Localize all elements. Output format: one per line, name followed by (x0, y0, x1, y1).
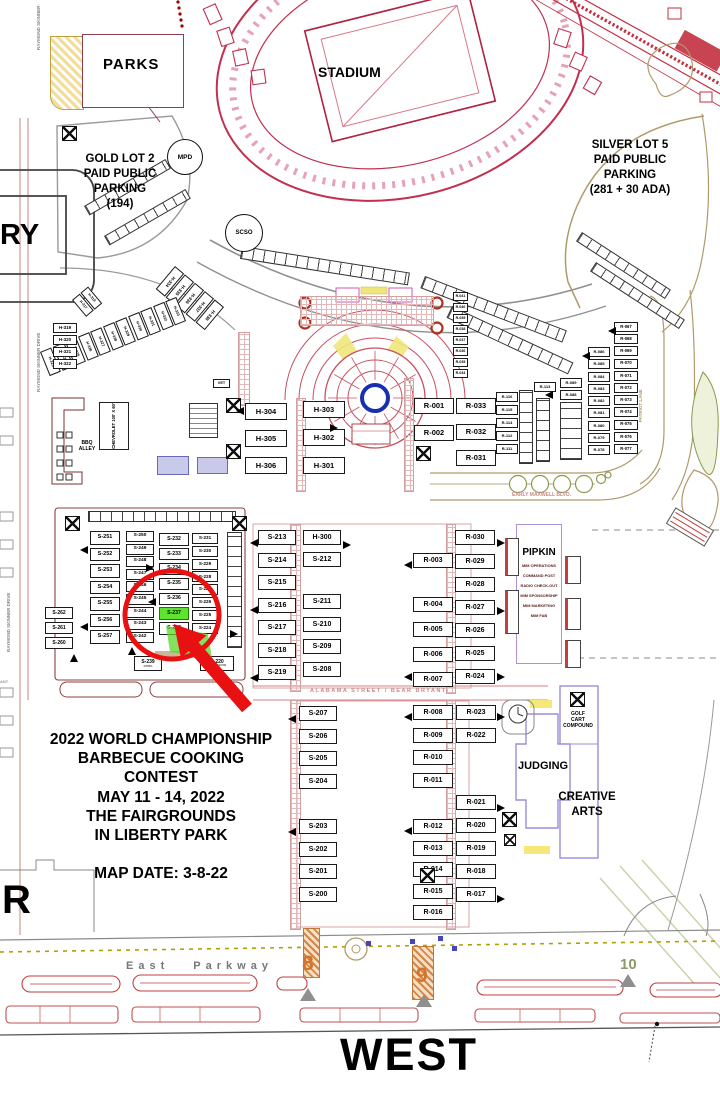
booth-s-211: S-211 (303, 594, 341, 609)
golf-cart-label: GOLFCARTCOMPOUND (556, 712, 600, 729)
booth-strip (240, 246, 410, 285)
booth-r-085: R-085 (588, 359, 610, 369)
booth-col-s232: S-232S-233S-234S-235S-236S-237S-238 (159, 533, 189, 635)
booth-r-071: R-071 (614, 371, 638, 381)
booth-col-r041: R-041R-040R-039R-038R-037R-036R-035R-034 (453, 292, 468, 378)
booth-col-h319: H-319H-320H-321H-322 (53, 323, 77, 369)
booth-r-111: R-111 (496, 444, 518, 454)
text-the-fairgrounds: THE FAIRGROUNDS (30, 807, 292, 826)
booth-col-r067: R-067R-068R-069R-070R-071R-072R-073R-074… (614, 322, 638, 454)
entrance-arrow (80, 546, 88, 554)
booth-r-027: R-027 (455, 600, 495, 615)
pipkin-label: PIPKIN (517, 547, 561, 558)
entrance-arrow (70, 654, 78, 662)
utility-box (62, 126, 77, 141)
text-paid-public: PAID PUBLIC (562, 153, 698, 168)
booth-h-303: H-303 (303, 401, 345, 418)
booth-r-083: R-083 (588, 384, 610, 394)
booth-s-231: S-231 (192, 533, 218, 544)
booth-r-004: R-004 (413, 597, 453, 612)
booth-col-s213: S-213S-214S-215S-216S-217S-218S-219 (258, 530, 296, 680)
text-gold-lot-2: GOLD LOT 2 (58, 152, 182, 167)
entrance-arrow (250, 606, 258, 614)
booth-r-115: R-115 (496, 405, 518, 415)
booth-r-068: R-068 (614, 334, 638, 344)
booth-s-244: S-244 (126, 607, 154, 618)
booth-col-r029: R-029R-028R-027R-026R-025R-024 (455, 554, 495, 684)
booth-col-r033: R-033R-032R-031 (456, 398, 496, 466)
booth-s-260: S-260 (45, 637, 73, 649)
booth-h-319: H-319 (53, 323, 77, 333)
vendor-booth (565, 640, 581, 668)
booth-s-205: S-205 (299, 751, 337, 766)
entrance-arrow (497, 673, 505, 681)
booth-s-250: S-250 (126, 531, 154, 542)
booth-s-216: S-216 (258, 598, 296, 613)
text-mim-marketing: MIM MARKETING (517, 604, 561, 608)
booth-s-226: S-226 (192, 597, 218, 608)
entrance-arrow (330, 424, 338, 432)
gate-10-label: 10 (620, 956, 637, 973)
booth-h-306: H-306 (245, 457, 287, 474)
booth-s-224: S-224 (192, 623, 218, 634)
parks-label: PARKS (103, 56, 159, 74)
vendor-booth (565, 598, 581, 630)
pipkin-departments: MIM OPERATIONSCOMMAND POSTRADIO CHECK-OU… (517, 564, 561, 617)
booth-col-s251: S-251S-252S-253S-254S-255S-256S-257 (90, 531, 120, 644)
text-mim-fab: MIM FAB (517, 614, 561, 618)
booth-r-021: R-021 (456, 795, 496, 810)
booth-col-s203: S-203S-202S-201S-200 (299, 819, 337, 902)
street-alabama: ALABAMA STREET / BEAR BRYANT (310, 688, 447, 695)
utility-box (504, 834, 516, 846)
booth-s-238: S-238 (159, 622, 189, 635)
booth-s-237: S-237 (159, 607, 189, 620)
booth-r-015: R-015 (413, 884, 453, 899)
utility-box (420, 868, 435, 883)
booth-s-229: S-229 (192, 559, 218, 570)
booth-col-s224: S-231S-230S-229S-228S-227S-226S-225S-224 (192, 533, 218, 634)
text--281-30-ada-: (281 + 30 ADA) (562, 183, 698, 198)
street-raymond-skinner-mid: RAYMOND SKINNER DRIVE (36, 300, 41, 392)
plaza-hatch (300, 296, 434, 326)
text-parking: PARKING (562, 168, 698, 183)
entrance-arrow (404, 827, 412, 835)
booth-strip (536, 398, 550, 462)
walkway-hatch (404, 378, 414, 492)
booth-s-204: S-204 (299, 774, 337, 789)
booth-s-219: S-219 (258, 665, 296, 680)
stadium-label: STADIUM (318, 64, 381, 81)
entrance-arrow (497, 804, 505, 812)
text-in-liberty-park: IN LIBERTY PARK (30, 826, 292, 845)
gate-9-marker (416, 994, 432, 1007)
vet-booth: VET (213, 379, 230, 388)
booth-s-256: S-256 (90, 614, 120, 628)
vendor-tent (157, 456, 189, 475)
entrance-arrow (236, 407, 244, 415)
booth-r-001: R-001 (414, 398, 454, 414)
booth-s-232: S-232 (159, 533, 189, 546)
vendor-booth (505, 538, 519, 576)
booth-r-013: R-013 (413, 841, 453, 856)
booth-h-304: H-304 (245, 403, 287, 420)
booth-r-073: R-073 (614, 395, 638, 405)
booth-s-213: S-213 (258, 530, 296, 545)
entrance-arrow (148, 598, 156, 606)
booth-r-075: R-075 (614, 420, 638, 430)
chevrolet-tent: CHEVROLET 100' X 60' (99, 402, 129, 450)
booth-s-227: S-227 (192, 584, 218, 595)
booth-r-084: R-084 (588, 372, 610, 382)
booth-col-r078: R-086R-085R-084R-083R-082R-081R-080R-079… (588, 347, 610, 455)
text-compound: COMPOUND (556, 724, 600, 730)
booth-s-212: S-212 (303, 552, 341, 567)
booth-r-082: R-082 (588, 396, 610, 406)
booth-s-228: S-228 (192, 571, 218, 582)
booth-r-009: R-009 (413, 728, 453, 743)
title-lines: 2022 WORLD CHAMPIONSHIPBARBECUE COOKINGC… (30, 730, 292, 845)
booth-s-262: S-262 (45, 607, 73, 619)
text-command-post: COMMAND POST (517, 574, 561, 578)
booth-s-225: S-225 (192, 610, 218, 621)
booth-r-030: R-030 (455, 530, 495, 545)
booth-r-022: R-022 (456, 728, 496, 743)
entrance-arrow (250, 674, 258, 682)
booth-r-028: R-028 (455, 577, 495, 592)
booth-r-006: R-006 (413, 647, 453, 662)
booth-col-s260: S-262S-261S-260 (45, 607, 73, 649)
entrance-arrow (128, 647, 136, 655)
booth-r-070: R-070 (614, 359, 638, 369)
booth-s-218: S-218 (258, 643, 296, 658)
street-early-maxwell: EARLY MAXWELL BLVD. (512, 492, 571, 498)
entrance-arrow (288, 715, 296, 723)
booth-r-072: R-072 (614, 383, 638, 393)
booth-col-r008: R-008R-009R-010R-011 (413, 705, 453, 788)
booth-r-080: R-080 (588, 421, 610, 431)
booth-s-252: S-252 (90, 548, 120, 562)
booth-s-234: S-234 (159, 563, 189, 576)
text-alley: ALLEY (76, 447, 98, 453)
booth-strip (519, 390, 533, 464)
booth-s-257: S-257 (90, 630, 120, 644)
booth-s-251: S-251 (90, 531, 120, 545)
booth-h-322: H-322 (53, 359, 77, 369)
gate-10-marker (620, 974, 636, 987)
street-raymond-skinner-top: RAYMOND SKINNER DRIVE (36, 4, 41, 50)
walkway-hatch (238, 332, 250, 406)
booth-s-249: S-249 (126, 544, 154, 555)
booth-col-r089: R-089R-088 (560, 378, 582, 400)
booth-r-034: R-034 (453, 369, 468, 378)
entrance-arrow (404, 561, 412, 569)
booth-s-254: S-254 (90, 581, 120, 595)
booth-s-215: S-215 (258, 575, 296, 590)
booth-col-r003: R-003 (413, 553, 453, 568)
booth-h-301: H-301 (303, 457, 345, 474)
booth-r-025: R-025 (455, 646, 495, 661)
booth-col-h300: H-300S-212 (303, 530, 341, 567)
street-patriot-lane: PATRIOT LANE (638, 360, 643, 422)
booth-r-069: R-069 (614, 346, 638, 356)
scso-badge: SCSO (225, 214, 263, 252)
utility-box (502, 812, 517, 827)
bbq-alley-label: BBQALLEY (76, 441, 98, 453)
booth-s-253: S-253 (90, 564, 120, 578)
booth-col-r030: R-030 (455, 530, 495, 545)
parks-hatch (50, 36, 84, 110)
booth-r-076: R-076 (614, 432, 638, 442)
booth-r-003: R-003 (413, 553, 453, 568)
booth-s-239: S-239KPMG (134, 656, 162, 671)
info-table (189, 403, 218, 438)
booth-s-230: S-230 (192, 546, 218, 557)
booth-r-005: R-005 (413, 622, 453, 637)
entrance-arrow (146, 564, 154, 572)
pipkin-building: PIPKIN MIM OPERATIONSCOMMAND POSTRADIO C… (516, 524, 562, 664)
booth-h-321: H-321 (53, 347, 77, 357)
booth-r-081: R-081 (588, 408, 610, 418)
text-contest: CONTEST (30, 768, 292, 787)
entrance-arrow (582, 352, 590, 360)
text-parking: PARKING (58, 182, 182, 197)
booth-col-r023: R-023R-022 (456, 705, 496, 743)
booth-r-026: R-026 (455, 623, 495, 638)
booth-r-077: R-077 (614, 444, 638, 454)
booth-s-207: S-207 (299, 706, 337, 721)
booth-s-243: S-243 (126, 619, 154, 630)
text-silver-lot-5: SILVER LOT 5 (562, 138, 698, 153)
creative-arts-label: CREATIVEARTS (556, 790, 618, 820)
booth-r-112: R-112 (496, 431, 518, 441)
booth-r-019: R-019 (456, 841, 496, 856)
booth-h-300: H-300 (303, 530, 341, 545)
text-creative: CREATIVE (556, 790, 618, 805)
booth-r-032: R-032 (456, 424, 496, 440)
booth-h-320: H-320 (53, 335, 77, 345)
booth-col-h304: H-304H-305H-306 (245, 403, 287, 474)
judging-label: JUDGING (518, 760, 568, 773)
booth-r-031: R-031 (456, 450, 496, 466)
booth-col-r004: R-004R-005R-006R-007 (413, 597, 453, 687)
booth-col-s211: S-211S-210S-209S-208 (303, 594, 341, 677)
booth-strip (560, 402, 582, 460)
booth-r-078: R-078 (588, 445, 610, 455)
booth-col-s207: S-207S-206S-205S-204 (299, 706, 337, 789)
booth-s-217: S-217 (258, 620, 296, 635)
booth-s-202: S-202 (299, 842, 337, 857)
text-paid-public: PAID PUBLIC (58, 167, 182, 182)
entrance-arrow (250, 539, 258, 547)
entrance-arrow (343, 541, 351, 549)
booth-s-200: S-200 (299, 887, 337, 902)
text-arts: ARTS (556, 805, 618, 820)
utility-box (65, 516, 80, 531)
booth-r-079: R-079 (588, 433, 610, 443)
entrance-arrow (497, 539, 505, 547)
booth-s-220: S-220CONCESSIONS (200, 656, 234, 671)
booth-col-r021: R-021R-020R-019R-018R-017 (456, 795, 496, 902)
booth-s-210: S-210 (303, 617, 341, 632)
entrance-arrow (80, 623, 88, 631)
utility-box (226, 444, 241, 459)
gate-8-label: 8 (302, 952, 314, 976)
booth-r-007: R-007 (413, 672, 453, 687)
booth-s-214: S-214 (258, 553, 296, 568)
booth-h-305: H-305 (245, 430, 287, 447)
booth-r-016: R-016 (413, 905, 453, 920)
booth-r-033: R-033 (456, 398, 496, 414)
text-radio-check-out: RADIO CHECK-OUT (517, 584, 561, 588)
utility-box (232, 516, 247, 531)
map-title-block: 2022 WORLD CHAMPIONSHIPBARBECUE COOKINGC… (30, 730, 292, 883)
r-partial-label: R (2, 876, 31, 924)
text-mim-sponsorship: MIM SPONSORSHIP (517, 594, 561, 598)
entrance-arrow (497, 713, 505, 721)
booth-r-037: R-037 (453, 336, 468, 345)
booth-s-242: S-242 (126, 632, 154, 643)
booth-r-040: R-040 (453, 303, 468, 312)
street-raymond-skinner-south: RAYMOND SKINNER DRIVE (6, 552, 11, 652)
fairgrounds-map: PARKS STADIUM RY GOLD LOT 2PAID PUBLICPA… (0, 0, 720, 1113)
booth-r-088: R-088 (560, 390, 582, 400)
booth-r-067: R-067 (614, 322, 638, 332)
booth-strip (88, 511, 236, 522)
gold-lot-label: GOLD LOT 2PAID PUBLICPARKING(194) (58, 152, 182, 212)
entrance-arrow (497, 607, 505, 615)
booth-r-023: R-023 (456, 705, 496, 720)
gate-9-label: 9 (416, 964, 428, 988)
west-label: WEST (340, 1028, 478, 1082)
booth-s-233: S-233 (159, 548, 189, 561)
vendor-tent (197, 457, 228, 474)
booth-r-017: R-017 (456, 887, 496, 902)
booth-r-008: R-008 (413, 705, 453, 720)
booth-r-114: R-114 (496, 418, 518, 428)
entrance-arrow (497, 895, 505, 903)
street-east-parkway: East Parkway (126, 960, 273, 973)
booth-r-074: R-074 (614, 407, 638, 417)
vendor-booth (565, 556, 581, 584)
text-mim-operations: MIM OPERATIONS (517, 564, 561, 568)
entrance-arrow (230, 630, 238, 638)
booth-r-018: R-018 (456, 864, 496, 879)
booth-r-020: R-020 (456, 818, 496, 833)
entrance-arrow (545, 391, 553, 399)
booth-r-036: R-036 (453, 347, 468, 356)
utility-box (570, 692, 585, 707)
vendor-booth (505, 590, 519, 634)
ant-partial-label: ANT (0, 680, 8, 685)
booth-r-041: R-041 (453, 292, 468, 301)
booth-s-261: S-261 (45, 622, 73, 634)
booth-r-002: R-002 (414, 425, 454, 441)
booth-s-235: S-235 (159, 578, 189, 591)
booth-h-302: H-302 (303, 429, 345, 446)
text-may-11-14-2022: MAY 11 - 14, 2022 (30, 788, 292, 807)
booth-pair-h317: H-317H-318 (72, 287, 102, 317)
booth-s-201: S-201 (299, 864, 337, 879)
booth-s-255: S-255 (90, 597, 120, 611)
booth-s-203: S-203 (299, 819, 337, 834)
utility-box (416, 446, 431, 461)
booth-s-209: S-209 (303, 639, 341, 654)
booth-s-206: S-206 (299, 729, 337, 744)
booth-s-236: S-236 (159, 593, 189, 606)
map-date: MAP DATE: 3-8-22 (30, 865, 292, 883)
booth-r-012: R-012 (413, 819, 453, 834)
booth-r-010: R-010 (413, 750, 453, 765)
booth-col-s242: S-250S-249S-248S-247S-246S-245S-244S-243… (126, 531, 154, 643)
booth-r-024: R-024 (455, 669, 495, 684)
booth-r-039: R-039 (453, 314, 468, 323)
booth-col-h303: H-303H-302H-301 (303, 401, 345, 474)
booth-r-089: R-089 (560, 378, 582, 388)
armory-partial-label: RY (0, 218, 39, 253)
booth-s-208: S-208 (303, 662, 341, 677)
booth-r-116: R-116 (496, 392, 518, 402)
booth-col-r001: R-001R-002 (414, 398, 454, 441)
entrance-arrow (404, 713, 412, 721)
booth-r-011: R-011 (413, 773, 453, 788)
booth-r-086: R-086 (588, 347, 610, 357)
silver-lot-label: SILVER LOT 5PAID PUBLICPARKING(281 + 30 … (562, 138, 698, 198)
text--194-: (194) (58, 197, 182, 212)
booth-r-029: R-029 (455, 554, 495, 569)
booth-s-246: S-246 (126, 581, 154, 592)
entrance-arrow (608, 327, 616, 335)
booth-r-035: R-035 (453, 358, 468, 367)
gate-8-marker (300, 988, 316, 1001)
booth-col-r116: R-116R-115R-114R-112R-111 (496, 392, 518, 454)
text-2022-world-championship: 2022 WORLD CHAMPIONSHIP (30, 730, 292, 749)
text-barbecue-cooking: BARBECUE COOKING (30, 749, 292, 768)
entrance-arrow (404, 673, 412, 681)
booth-r-038: R-038 (453, 325, 468, 334)
